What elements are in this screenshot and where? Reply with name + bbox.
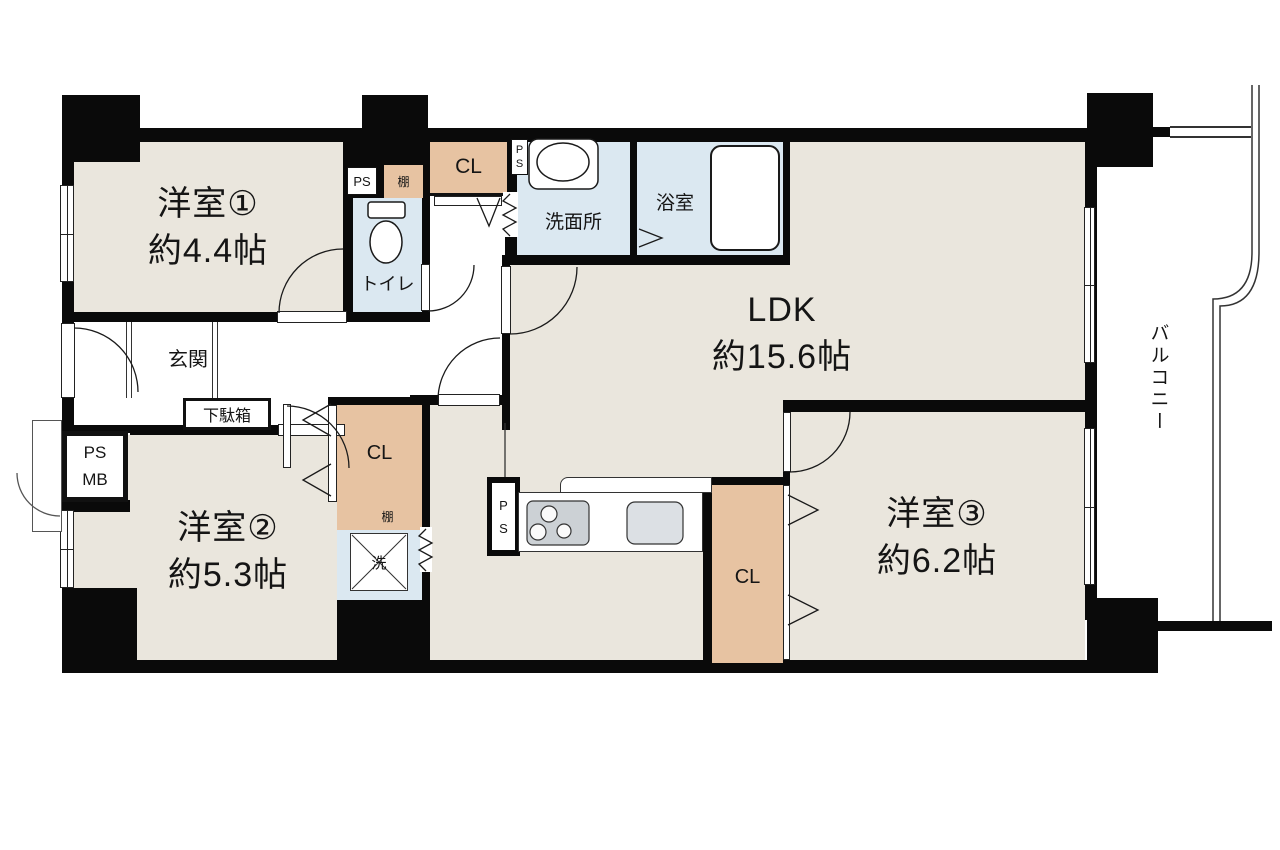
laundry-accordion-gap	[420, 527, 432, 572]
wall-kitchen-stub	[703, 477, 712, 663]
wall-toilet-bottom	[343, 312, 430, 322]
ps-shaft-label: P S	[511, 140, 528, 174]
ps-shaft-s: S	[516, 157, 523, 171]
balcony-bottom-band	[1158, 621, 1272, 631]
toilet-door-leaf	[421, 264, 430, 311]
room2-door-leaf	[283, 404, 291, 468]
wall-room3-top	[783, 400, 1097, 412]
toilet-label: トイレ	[353, 270, 422, 296]
closet-mid-door	[328, 405, 337, 502]
entrance-label: 玄関	[148, 344, 228, 370]
kitchen-ps-p: P	[499, 494, 508, 517]
closet-top-door	[434, 196, 502, 206]
room3-door-leaf	[783, 412, 791, 472]
bathroom-label: 浴室	[640, 188, 710, 214]
shelf-top-label: 棚	[384, 171, 423, 191]
shoe-cabinet-label: 下駄箱	[183, 400, 271, 428]
ps-mb-label: PS MB	[62, 433, 128, 500]
kitchen-door-arc	[438, 338, 500, 400]
room1-name: 洋室①	[157, 181, 258, 228]
ps-top-label: PS	[347, 169, 377, 193]
kitchen-ps-label: P S	[492, 487, 515, 547]
pillar-bottom-middle	[337, 600, 430, 663]
wall-wet-bottom	[502, 255, 790, 265]
closet-mid-label: CL	[337, 438, 422, 468]
washroom-floor	[517, 142, 630, 255]
floor-plan: 洋室① 約4.4帖 洋室② 約5.3帖 洋室③ 約6.2帖 LDK 約15.6帖…	[0, 0, 1280, 850]
entrance-door-leaf	[61, 323, 75, 398]
room1-label: 洋室① 約4.4帖	[68, 178, 348, 278]
wall-bathroom-right	[783, 142, 790, 265]
toilet-door-arc	[428, 265, 474, 311]
shelf-mid-label: 棚	[360, 506, 415, 526]
window-ldk	[1084, 207, 1095, 363]
entrance-step-line-a	[126, 322, 132, 398]
ldk-door-leaf	[501, 266, 511, 334]
kitchen-counter-back	[560, 477, 712, 493]
wall-closet3-top	[703, 477, 790, 485]
room3-label: 洋室③ 約6.2帖	[797, 488, 1077, 588]
wall-bottom	[62, 660, 1158, 673]
balcony-top-stub	[1150, 127, 1172, 137]
ldk-name: LDK	[747, 287, 816, 334]
room3-size: 約6.2帖	[877, 538, 997, 585]
room1-size: 約4.4帖	[148, 228, 268, 275]
balcony-rail-inner	[1213, 85, 1252, 621]
room2-label: 洋室② 約5.3帖	[88, 502, 368, 602]
ps-shaft-p: P	[516, 143, 523, 157]
ldk-size: 約15.6帖	[712, 334, 852, 381]
pillar-bottom-right	[1087, 598, 1158, 673]
pillar-top-middle	[362, 95, 428, 142]
room2-size: 約5.3帖	[168, 552, 288, 599]
kitchen-door-leaf	[438, 394, 500, 406]
room1-door-leaf	[277, 311, 347, 323]
mb-label: MB	[82, 467, 108, 493]
wall-top	[62, 128, 1097, 142]
wall-washroom-bathroom	[630, 142, 637, 255]
room2-name: 洋室②	[177, 505, 278, 552]
window-room2	[60, 510, 74, 588]
closet-room3-label: CL	[712, 562, 783, 592]
room3-name: 洋室③	[886, 491, 987, 538]
closet-room3-door	[783, 485, 790, 660]
closet-top-label: CL	[430, 152, 507, 182]
kitchen-ps-s: S	[499, 517, 508, 540]
meter-box-alcove	[32, 420, 62, 532]
balcony-top-rail	[1170, 126, 1251, 138]
ldk-floor-passage	[712, 405, 783, 478]
washroom-label: 洗面所	[517, 206, 630, 234]
ps-label: PS	[84, 440, 107, 466]
wall-closet-column-top	[328, 397, 430, 405]
ldk-label: LDK 約15.6帖	[642, 284, 922, 384]
kitchen-counter	[518, 492, 703, 552]
balcony-rail-outer	[1220, 85, 1259, 621]
balcony-label: バルコニー	[1143, 290, 1173, 465]
washer-label: 洗	[350, 548, 408, 576]
window-room3	[1084, 428, 1095, 585]
washroom-accordion-gap	[503, 192, 518, 237]
